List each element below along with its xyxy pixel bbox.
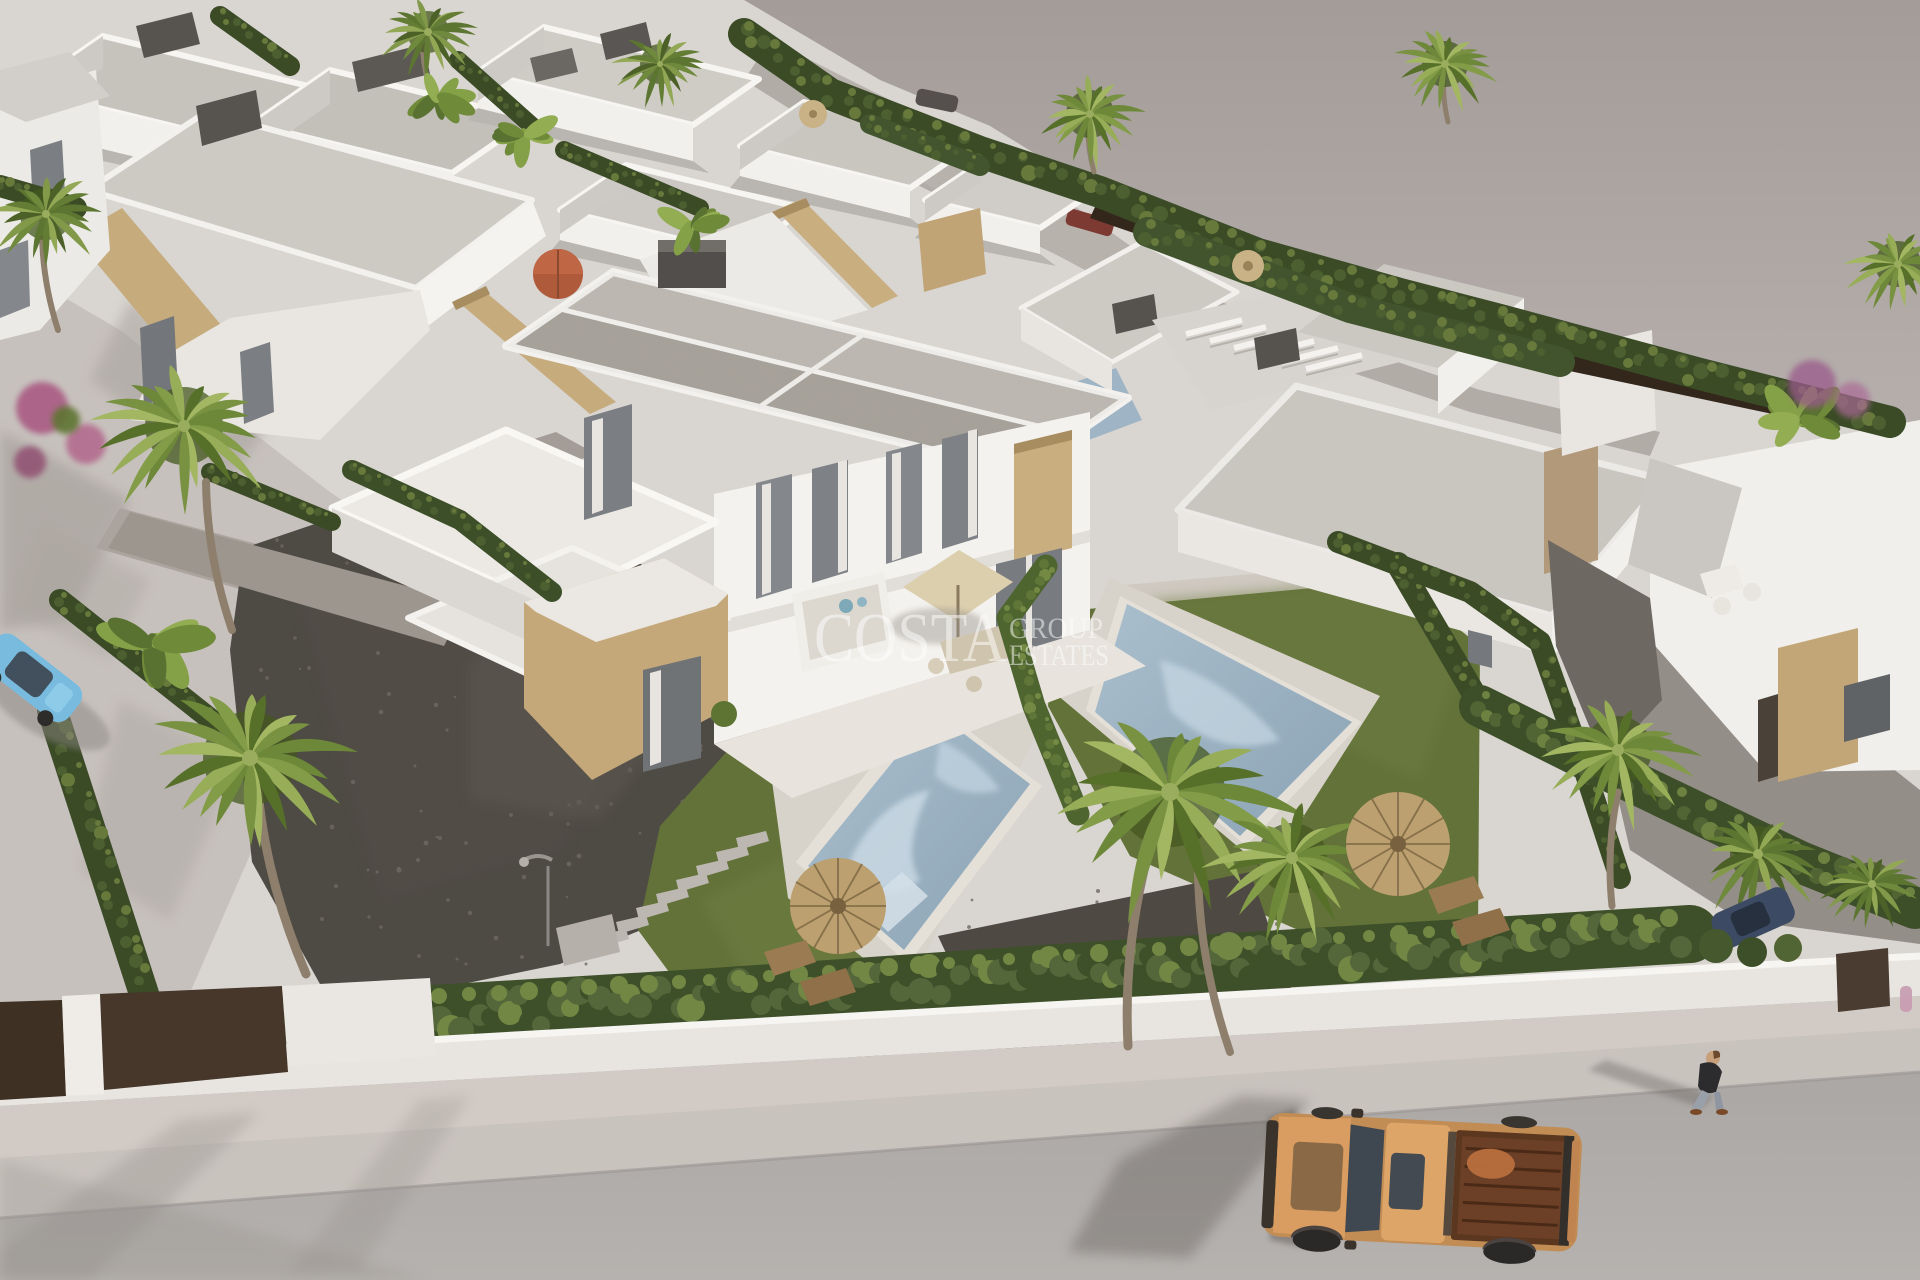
svg-text:ESTATES: ESTATES — [1009, 639, 1109, 672]
svg-text:COSTA: COSTA — [814, 600, 1006, 677]
